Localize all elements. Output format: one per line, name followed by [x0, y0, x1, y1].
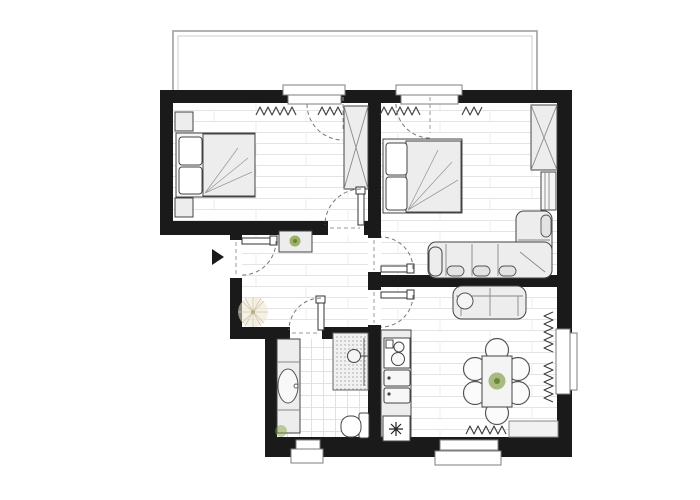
- pillow: [179, 137, 202, 165]
- freezer: [383, 416, 410, 441]
- sofa-cushion: [473, 266, 490, 276]
- stove: [384, 338, 410, 368]
- window-right-wall: [556, 329, 577, 394]
- dried-plant: [238, 297, 268, 327]
- pillow: [179, 167, 202, 194]
- shower-head: [348, 350, 361, 363]
- sofa-cushion: [541, 215, 551, 237]
- sofa-armrest: [429, 247, 442, 276]
- freezer-star-icon: [389, 422, 403, 436]
- wall-top: [160, 90, 572, 103]
- dining-sideboard: [509, 421, 558, 437]
- floor-plan-drawing: [0, 0, 700, 500]
- balcony-window-right: [396, 85, 462, 104]
- nightstand-bottom: [175, 198, 193, 217]
- washbasin-counter: [277, 339, 300, 433]
- kitchen-furniture: [381, 330, 411, 441]
- balcony-window-left: [283, 85, 345, 104]
- wall-left: [160, 90, 173, 235]
- double-bed-left: [176, 133, 255, 197]
- sofa-cushion: [447, 266, 464, 276]
- double-sink: [384, 370, 410, 403]
- stove-panel: [386, 340, 393, 348]
- window-bathroom-bottom: [291, 440, 323, 463]
- wardrobe-living-room: [531, 105, 557, 170]
- shower: [333, 333, 368, 390]
- wardrobe-left-bedroom: [344, 106, 368, 189]
- window-dining-bottom: [435, 440, 501, 465]
- wall-hall-left-a: [230, 235, 242, 240]
- wall-kitchen-bathroom: [368, 325, 381, 457]
- wall-hall-right-a: [368, 221, 381, 238]
- sofa-cushion: [499, 266, 516, 276]
- shelf: [541, 172, 556, 210]
- wall-right: [557, 90, 572, 457]
- burner: [392, 353, 405, 366]
- nightstand-top: [175, 112, 193, 131]
- pillow: [386, 177, 407, 210]
- bathroom-plant: [275, 425, 287, 437]
- pillow: [386, 143, 407, 175]
- hall-sideboard: [279, 231, 312, 252]
- balcony-outline: [173, 31, 537, 91]
- floor-plan-canvas: [0, 0, 700, 500]
- wall-hall-right-post: [368, 272, 381, 290]
- round-pillow: [457, 293, 473, 309]
- toilet-bowl: [341, 416, 361, 437]
- double-bed-right: [383, 139, 462, 213]
- entrance-marker-arrow: [212, 249, 224, 265]
- faucet: [294, 384, 298, 388]
- wall-between-bedrooms: [368, 90, 381, 221]
- loveseat: [453, 286, 526, 319]
- balcony: [173, 31, 537, 91]
- burner: [394, 342, 404, 352]
- wall-hall-bottom-a: [230, 327, 290, 339]
